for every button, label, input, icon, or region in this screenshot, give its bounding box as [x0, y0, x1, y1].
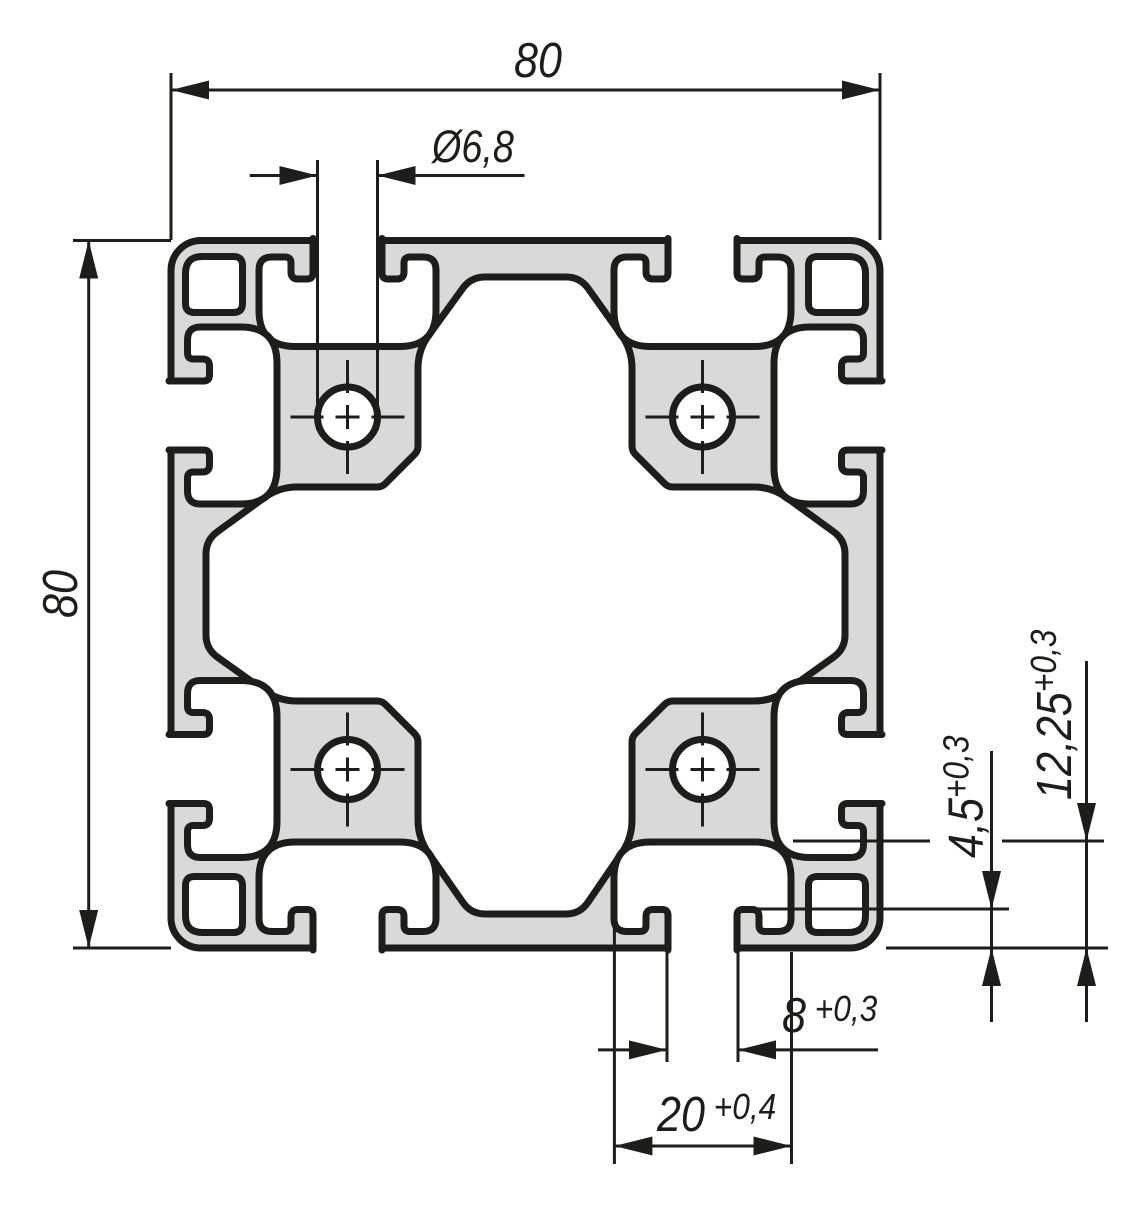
svg-text:80: 80 — [32, 570, 87, 618]
svg-text:Ø6,8: Ø6,8 — [430, 121, 514, 172]
svg-text:80: 80 — [514, 32, 562, 87]
